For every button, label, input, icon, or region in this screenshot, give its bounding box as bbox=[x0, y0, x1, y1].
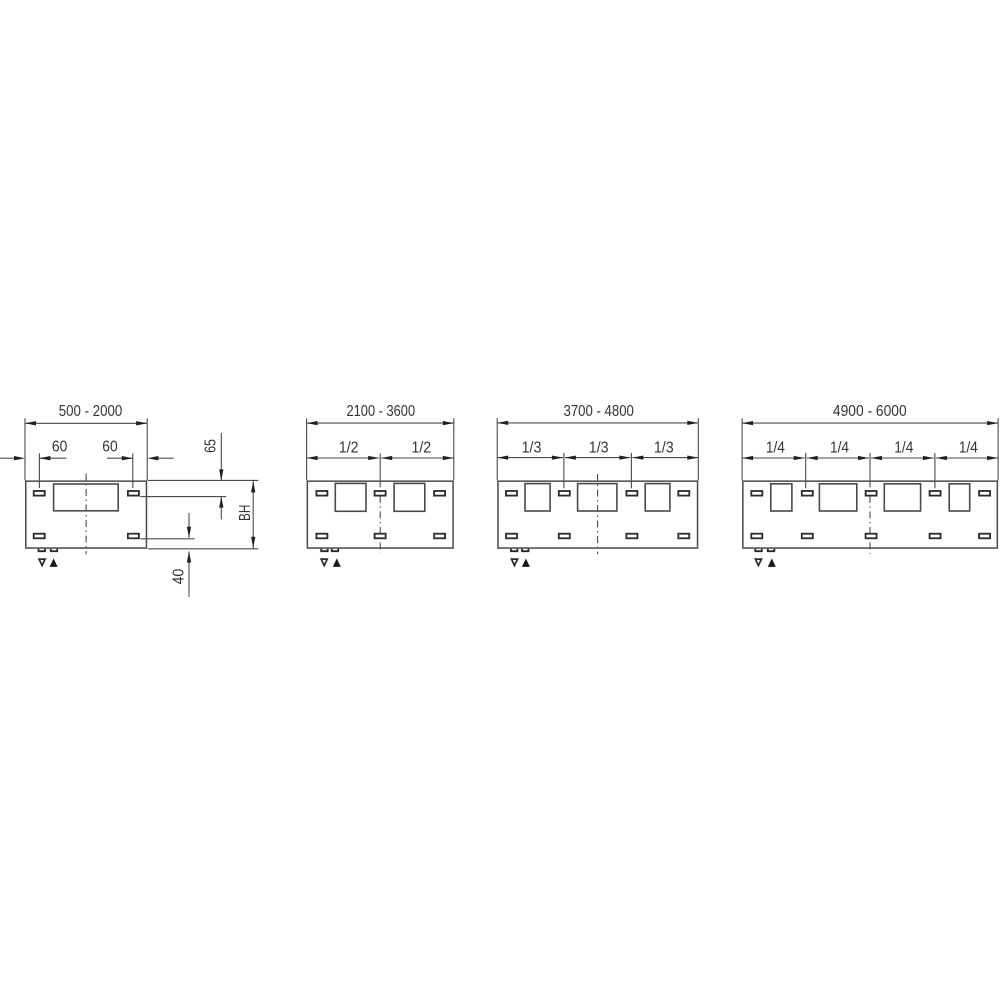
svg-text:3700 - 4800: 3700 - 4800 bbox=[564, 403, 635, 420]
svg-text:BH: BH bbox=[237, 505, 254, 521]
svg-text:1/4: 1/4 bbox=[830, 440, 849, 457]
svg-text:1/3: 1/3 bbox=[654, 440, 674, 457]
svg-text:60: 60 bbox=[52, 439, 68, 456]
svg-text:1/2: 1/2 bbox=[339, 440, 359, 457]
svg-text:2100 - 3600: 2100 - 3600 bbox=[347, 403, 416, 420]
svg-text:1/3: 1/3 bbox=[589, 440, 609, 457]
svg-text:1/4: 1/4 bbox=[766, 440, 785, 457]
svg-text:1/2: 1/2 bbox=[412, 440, 432, 457]
svg-text:1/3: 1/3 bbox=[522, 440, 542, 457]
svg-text:1/4: 1/4 bbox=[959, 440, 978, 457]
svg-text:40: 40 bbox=[171, 568, 188, 584]
svg-text:4900 - 6000: 4900 - 6000 bbox=[833, 403, 907, 420]
svg-text:60: 60 bbox=[102, 439, 118, 456]
svg-text:65: 65 bbox=[202, 439, 219, 453]
svg-text:500 - 2000: 500 - 2000 bbox=[59, 403, 123, 420]
svg-text:1/4: 1/4 bbox=[894, 440, 913, 457]
